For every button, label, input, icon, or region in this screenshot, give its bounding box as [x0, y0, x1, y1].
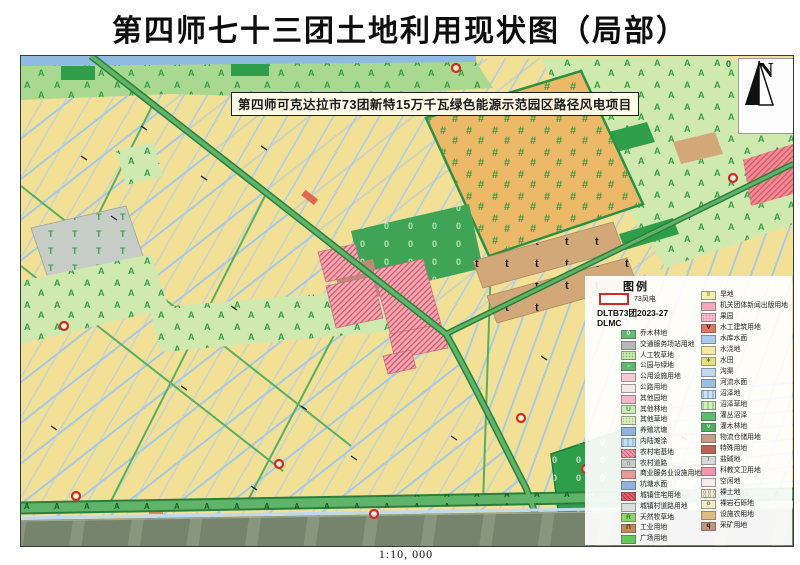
legend-swatch: [701, 379, 716, 388]
legend-item: 广场用地: [621, 534, 701, 545]
legend-item-label: 河流水面: [720, 380, 747, 387]
legend-item-label: 机关团体新闻出版用地: [720, 303, 788, 310]
legend-field: DLMC: [597, 318, 622, 328]
legend-item-label: 公园与绿地: [640, 363, 674, 370]
legend-item: q采矿用地: [701, 521, 788, 532]
legend-item-label: 沼泽地: [720, 391, 740, 398]
legend-swatch-symbol: ∗: [702, 358, 715, 365]
legend-item: o裸岩石砾地: [701, 499, 788, 510]
legend-swatch-symbol: ▫: [622, 363, 635, 370]
legend-swatch-symbol: U: [622, 406, 635, 413]
legend-item: 特殊用地: [701, 444, 788, 455]
legend-swatch: [701, 390, 716, 399]
legend-item: 城镇住宅用地: [621, 491, 701, 502]
legend-item-label: 其他林地: [640, 407, 667, 414]
legend-swatch: [621, 384, 636, 393]
legend-item-label: 水工建筑用地: [720, 325, 761, 332]
legend-item: 城镇村道路用地: [621, 502, 701, 513]
legend-item-label: 内陆滩涂: [640, 439, 667, 446]
legend-item-label: 沟渠: [720, 369, 734, 376]
legend-item-label: 商业服务业设施用地: [640, 471, 701, 478]
page: 第四师七十三团土地利用现状图（局部） A A: [0, 0, 800, 565]
legend-item: ∗水田: [701, 356, 788, 367]
legend-title: 图例: [623, 278, 649, 294]
legend-swatch: [621, 481, 636, 490]
legend-swatch: U: [621, 405, 636, 414]
legend-swatch: [621, 535, 636, 544]
legend-item-label: 旱地: [720, 292, 734, 299]
legend-swatch: [701, 467, 716, 476]
legend-item-label: 公用设施用地: [640, 374, 681, 381]
legend-item-label: 公路用地: [640, 385, 667, 392]
legend-swatch: [701, 401, 716, 410]
legend-item: 交通服务场站用地: [621, 340, 701, 351]
legend-item: Π工业用地: [621, 523, 701, 534]
legend-item: 公用设施用地: [621, 372, 701, 383]
legend-item: 物流仓储用地: [701, 433, 788, 444]
legend-item: 河流水面: [701, 378, 788, 389]
legend-item: 沼泽草地: [701, 400, 788, 411]
legend-item-label: 盐碱地: [720, 457, 740, 464]
north-arrow: N: [738, 58, 794, 134]
legend-item-label: 灌丛沼泽: [720, 413, 747, 420]
legend-item: 人工牧草地: [621, 351, 701, 362]
legend-item-label: 裸岩石砾地: [720, 501, 754, 508]
legend-swatch-symbol: o: [702, 501, 715, 508]
legend-swatch: [621, 341, 636, 350]
legend-item-label: 城镇住宅用地: [640, 493, 681, 500]
legend-swatch-symbol: ‖: [702, 292, 715, 299]
legend-swatch-symbol: 0: [622, 331, 635, 338]
legend-item: ▫公园与绿地: [621, 361, 701, 372]
legend-item: 设施农用地: [701, 510, 788, 521]
legend-swatch: [621, 449, 636, 458]
legend-item-label: 人工牧草地: [640, 353, 674, 360]
legend-item: 科教文卫用地: [701, 466, 788, 477]
legend-swatch: [701, 434, 716, 443]
legend-swatch: [701, 368, 716, 377]
legend-swatch-symbol: T: [702, 457, 715, 464]
legend-windfarm-row: 73风电: [599, 293, 656, 305]
legend-item: ‖旱地: [701, 290, 788, 301]
legend-item-label: 其他园地: [640, 396, 667, 403]
legend-item: V水工建筑用地: [701, 323, 788, 334]
legend-item: ∩农村道路: [621, 459, 701, 470]
map-scale: 1:10, 000: [20, 547, 792, 562]
legend-item: 其他园地: [621, 394, 701, 405]
legend-left-column: 0乔木林地交通服务场站用地人工牧草地▫公园与绿地公用设施用地公路用地其他园地U其…: [621, 329, 701, 545]
legend-item-label: 设施农用地: [720, 512, 754, 519]
legend-item: 沼泽地: [701, 389, 788, 400]
legend-swatch: [621, 470, 636, 479]
legend-item-label: 乔木林地: [640, 331, 667, 338]
legend-swatch-symbol: ∩: [622, 460, 635, 467]
legend-item: T盐碱地: [701, 455, 788, 466]
legend-item: v灌木林地: [701, 422, 788, 433]
legend-item-label: 沼泽草地: [720, 402, 747, 409]
legend-item-label: 水浇地: [720, 347, 740, 354]
legend-item: U其他林地: [621, 405, 701, 416]
legend-item-label: 广场用地: [640, 536, 667, 543]
legend-item-label: 物流仓储用地: [720, 435, 761, 442]
legend-item: 水库水面: [701, 334, 788, 345]
legend-swatch: q: [701, 522, 716, 531]
legend-item-label: 采矿用地: [720, 523, 747, 530]
legend-swatch: [621, 438, 636, 447]
legend-swatch: [701, 346, 716, 355]
legend-item: 水浇地: [701, 345, 788, 356]
legend-swatch: ∗: [701, 357, 716, 366]
legend-item-label: 果园: [720, 314, 734, 321]
legend-swatch: o: [701, 500, 716, 509]
legend-item: 果园: [701, 312, 788, 323]
map-canvas: A A # # T t 0 0: [20, 55, 794, 547]
legend-item: 空闲地: [701, 477, 788, 488]
windfarm-swatch: [599, 293, 629, 305]
legend-item-label: 水田: [720, 358, 734, 365]
legend-item-label: 养殖坑塘: [640, 428, 667, 435]
legend-swatch: [621, 492, 636, 501]
legend-item: R天然牧草地: [621, 513, 701, 524]
legend-item-label: 空闲地: [720, 479, 740, 486]
legend-item: 商业服务业设施用地: [621, 469, 701, 480]
legend-item-label: 城镇村道路用地: [640, 504, 688, 511]
legend-item: 机关团体新闻出版用地: [701, 301, 788, 312]
legend-item-label: 其他草地: [640, 417, 667, 424]
legend-item-label: 水库水面: [720, 336, 747, 343]
legend-swatch-symbol: V: [702, 325, 715, 332]
legend-swatch: [701, 412, 716, 421]
legend-item-label: 裸土地: [720, 490, 740, 497]
legend-swatch: ∩: [621, 459, 636, 468]
legend-swatch: [621, 395, 636, 404]
page-title: 第四师七十三团土地利用现状图（局部）: [0, 6, 800, 50]
legend-item: 农村宅基地: [621, 448, 701, 459]
legend-item: 公路用地: [621, 383, 701, 394]
legend-item-label: 天然牧草地: [640, 515, 674, 522]
legend-swatch-symbol: q: [702, 523, 715, 530]
legend-item-label: 交通服务场站用地: [640, 342, 694, 349]
legend-swatch: [701, 445, 716, 454]
legend-swatch: T: [701, 456, 716, 465]
legend-item-label: 农村道路: [640, 461, 667, 468]
legend-item: 养殖坑塘: [621, 426, 701, 437]
legend-item-label: 农村宅基地: [640, 450, 674, 457]
legend-swatch: [701, 511, 716, 520]
legend-item: 内陆滩涂: [621, 437, 701, 448]
legend-swatch: [701, 313, 716, 322]
north-arrow-icon: [739, 59, 779, 107]
legend-swatch: [701, 489, 716, 498]
legend-swatch: [701, 478, 716, 487]
legend-swatch-symbol: Π: [622, 525, 635, 532]
legend-swatch: R: [621, 513, 636, 522]
project-label: 第四师可克达拉市73团新特15万千瓦绿色能源示范园区路径风电项目: [231, 92, 639, 116]
legend-item: 其他草地: [621, 415, 701, 426]
legend-item-label: 工业用地: [640, 525, 667, 532]
legend-swatch: V: [701, 324, 716, 333]
legend-item: 灌丛沼泽: [701, 411, 788, 422]
legend-panel: 图例 73风电 DLTB73团2023-27 DLMC 0乔木林地交通服务场站用…: [585, 276, 792, 545]
legend-swatch: ‖: [701, 291, 716, 300]
legend-swatch: [621, 427, 636, 436]
legend-swatch: [621, 373, 636, 382]
legend-swatch: v: [701, 423, 716, 432]
legend-swatch-symbol: R: [622, 514, 635, 521]
legend-item: 坑塘水面: [621, 480, 701, 491]
legend-swatch: [701, 335, 716, 344]
legend-item: 沟渠: [701, 367, 788, 378]
legend-swatch: [621, 503, 636, 512]
legend-swatch: Π: [621, 524, 636, 533]
legend-right-column: ‖旱地机关团体新闻出版用地果园V水工建筑用地水库水面水浇地∗水田沟渠河流水面沼泽…: [701, 290, 788, 532]
legend-swatch: [621, 416, 636, 425]
legend-swatch: [621, 351, 636, 360]
legend-swatch: ▫: [621, 362, 636, 371]
legend-item-label: 科教文卫用地: [720, 468, 761, 475]
legend-item: 0乔木林地: [621, 329, 701, 340]
legend-swatch: [701, 302, 716, 311]
legend-swatch-symbol: v: [702, 424, 715, 431]
legend-swatch: 0: [621, 330, 636, 339]
windfarm-label: 73风电: [634, 294, 656, 304]
legend-item-label: 坑塘水面: [640, 482, 667, 489]
legend-item-label: 特殊用地: [720, 446, 747, 453]
legend-item-label: 灌木林地: [720, 424, 747, 431]
legend-item: 裸土地: [701, 488, 788, 499]
